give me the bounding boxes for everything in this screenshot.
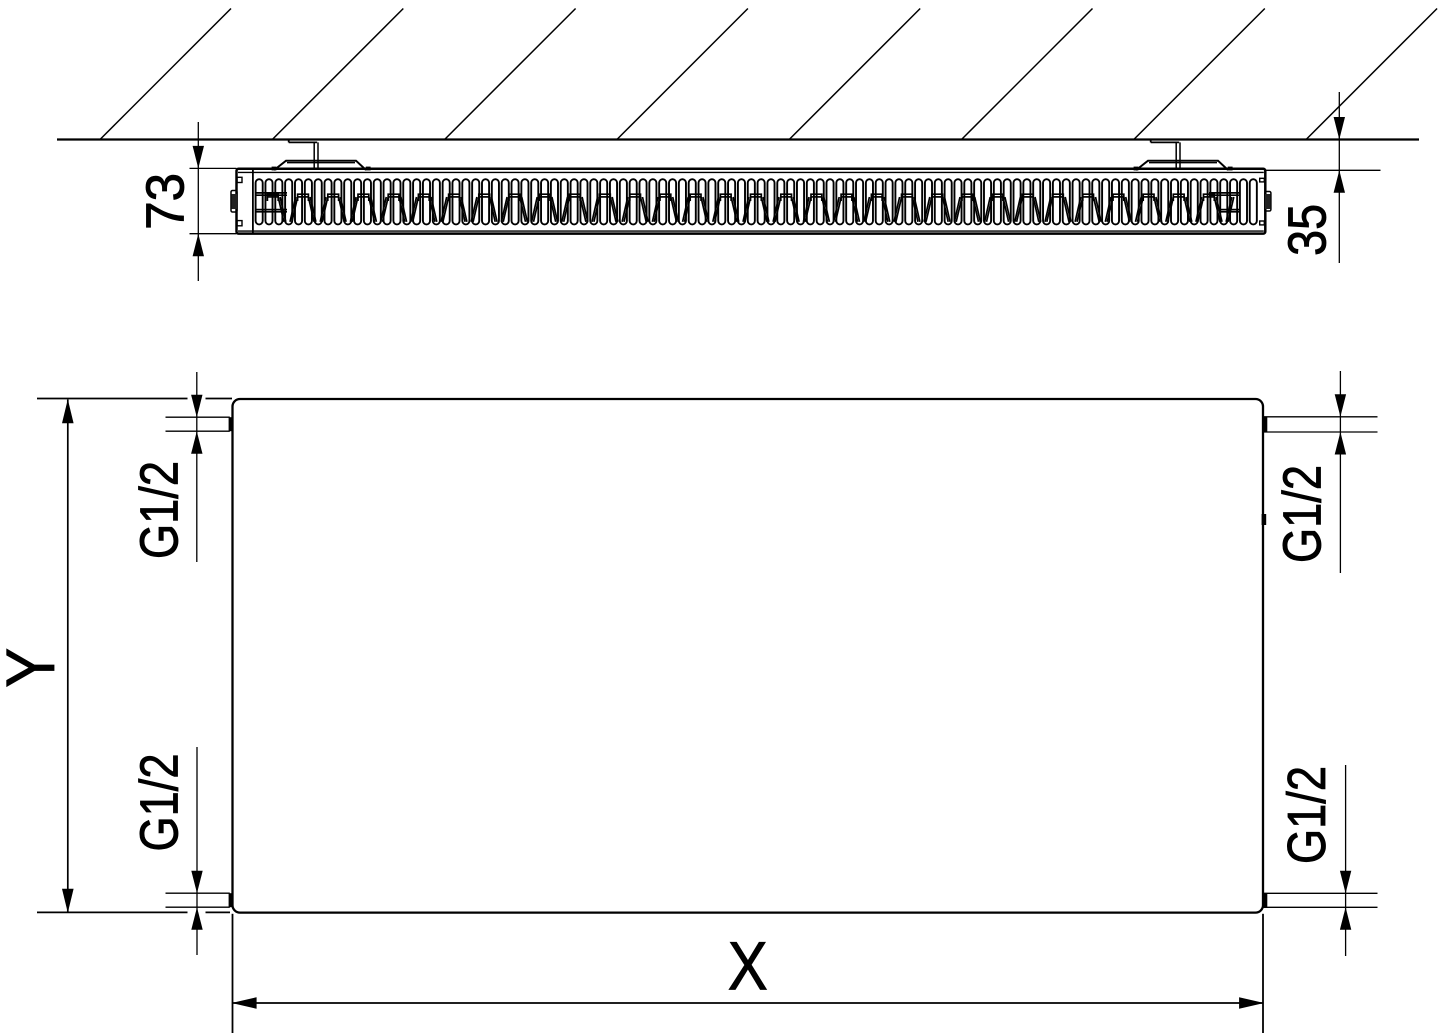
svg-text:G1/2: G1/2 — [130, 754, 190, 852]
svg-text:G1/2: G1/2 — [1273, 465, 1333, 563]
svg-text:73: 73 — [136, 173, 196, 230]
svg-text:X: X — [728, 927, 768, 1004]
svg-text:G1/2: G1/2 — [130, 461, 190, 559]
svg-text:Y: Y — [0, 648, 69, 688]
svg-text:G1/2: G1/2 — [1277, 766, 1337, 864]
svg-text:35: 35 — [1278, 204, 1338, 256]
